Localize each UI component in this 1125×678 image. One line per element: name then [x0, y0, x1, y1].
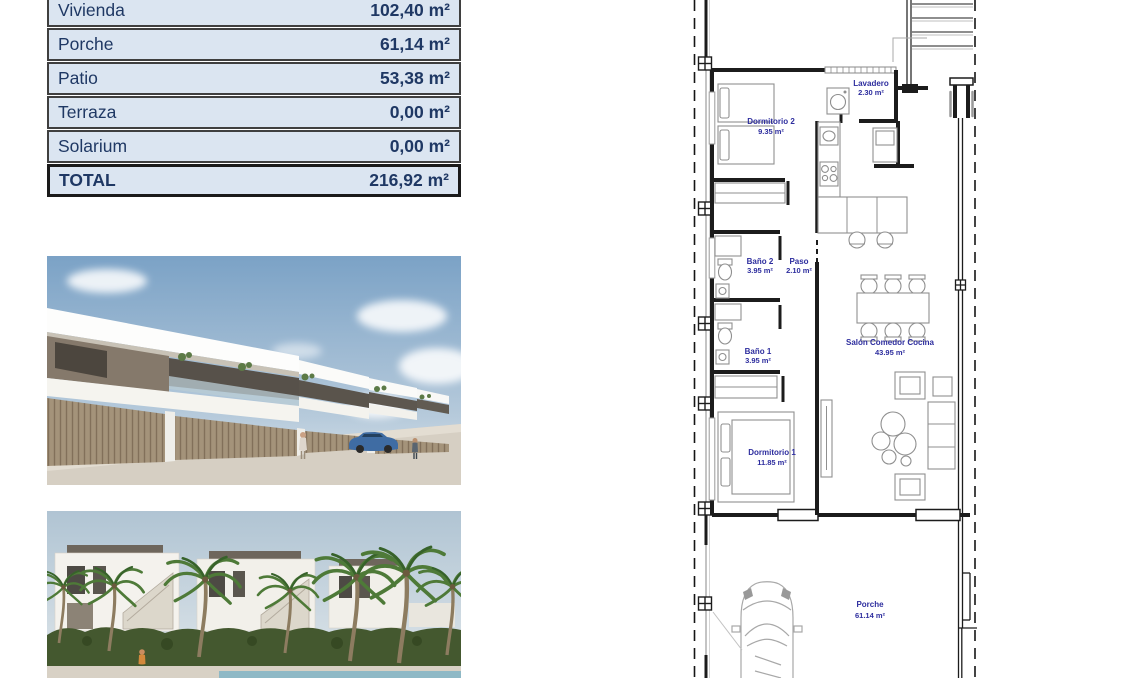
- entry-gate: [950, 78, 973, 118]
- wall-joint: [699, 397, 712, 410]
- row-value: 53,38 m²: [380, 68, 450, 89]
- total-value: 216,92 m²: [369, 170, 449, 191]
- washing-machine: [827, 88, 849, 114]
- room-area-porche: 61.14 m²: [855, 611, 886, 620]
- row-value: 61,14 m²: [380, 34, 450, 55]
- coffee-table: [872, 412, 916, 466]
- dining-chair: [861, 275, 877, 294]
- room-label-porche: Porche: [856, 600, 884, 609]
- wardrobe: [715, 183, 785, 203]
- room-area-salon: 43.95 m²: [875, 348, 906, 357]
- bar-stool: [877, 232, 893, 248]
- dining-chair: [885, 275, 901, 294]
- bathroom2-fixtures: [715, 236, 741, 298]
- living-set: [821, 372, 955, 500]
- porch-pillar: [778, 510, 818, 521]
- wall-joint: [699, 502, 712, 515]
- dining-set: [857, 275, 929, 341]
- total-label: TOTAL: [59, 170, 116, 191]
- room-label-bano2: Baño 2: [747, 257, 774, 266]
- wall-joint: [699, 597, 712, 610]
- car: [713, 582, 802, 678]
- pool: [219, 671, 461, 678]
- table-row: Terraza 0,00 m²: [47, 96, 461, 129]
- kitchen-fixtures: [818, 122, 907, 248]
- row-label: Porche: [58, 34, 113, 55]
- room-area-dormitorio1: 11.85 m²: [757, 458, 787, 467]
- area-summary-table: Vivienda 102,40 m² Porche 61,14 m² Patio…: [47, 0, 461, 198]
- room-label-salon: Salón Comedor Cocina: [846, 338, 935, 347]
- room-area-dormitorio2: 9.35 m²: [758, 127, 784, 136]
- row-value: 0,00 m²: [390, 102, 450, 123]
- floor-plan: Lavadero 2.30 m² Dormitorio 2 9.35 m² Ba…: [685, 0, 990, 678]
- row-value: 0,00 m²: [390, 136, 450, 157]
- room-label-lavadero: Lavadero: [853, 79, 889, 88]
- wall-joint: [699, 202, 712, 215]
- row-label: Vivienda: [58, 0, 125, 21]
- wardrobe: [715, 376, 777, 398]
- window-strip: [825, 67, 896, 73]
- tv-unit: [821, 400, 832, 477]
- row-value: 102,40 m²: [370, 0, 450, 21]
- wall-joint: [699, 317, 712, 330]
- bathroom1-fixtures: [715, 304, 741, 364]
- room-label-bano1: Baño 1: [745, 347, 772, 356]
- room-area-bano2: 3.95 m²: [747, 266, 773, 275]
- room-area-paso: 2.10 m²: [786, 266, 812, 275]
- bedroom1-bed: [718, 412, 794, 502]
- wall-joint: [699, 57, 712, 70]
- room-area-bano1: 3.95 m²: [745, 356, 771, 365]
- person-garden: [139, 649, 146, 664]
- row-label: Solarium: [58, 136, 127, 157]
- render-photo-street: [47, 256, 461, 485]
- room-label-paso: Paso: [789, 257, 808, 266]
- table-total-row: TOTAL 216,92 m²: [47, 164, 461, 197]
- table-row: Solarium 0,00 m²: [47, 130, 461, 163]
- room-label-dormitorio1: Dormitorio 1: [748, 448, 796, 457]
- wall-joint: [956, 280, 966, 290]
- row-label: Terraza: [58, 102, 116, 123]
- row-label: Patio: [58, 68, 98, 89]
- bar-stool: [849, 232, 865, 248]
- room-label-dormitorio2: Dormitorio 2: [747, 117, 795, 126]
- table-row: Vivienda 102,40 m²: [47, 0, 461, 27]
- brochure-page: Vivienda 102,40 m² Porche 61,14 m² Patio…: [0, 0, 1125, 678]
- boundary-wall-right: [956, 118, 978, 678]
- render-photo-garden: [47, 511, 461, 678]
- table-row: Patio 53,38 m²: [47, 62, 461, 95]
- dining-chair: [909, 275, 925, 294]
- room-area-lavadero: 2.30 m²: [858, 88, 884, 97]
- table-row: Porche 61,14 m²: [47, 28, 461, 61]
- porch-pillar: [916, 510, 960, 521]
